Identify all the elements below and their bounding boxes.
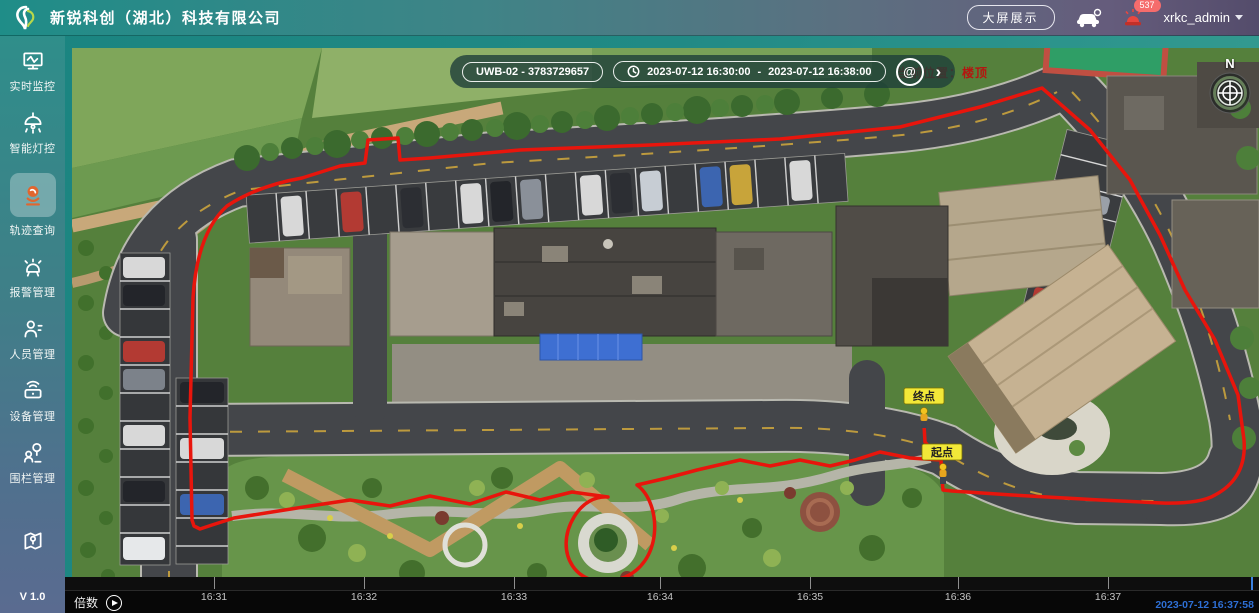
username: xrkc_admin — [1164, 10, 1230, 25]
timeline-tick-label: 16:33 — [494, 591, 534, 603]
device-select-label: UWB-02 - 3783729657 — [476, 66, 589, 78]
big-screen-button[interactable]: 大屏展示 — [967, 5, 1055, 30]
map-icon — [21, 529, 45, 553]
company-name: 新锐科创（湖北）科技有限公司 — [50, 7, 281, 28]
sidebar-item-label: 人员管理 — [10, 346, 56, 362]
timeline-tick-label: 16:35 — [790, 591, 830, 603]
app-root: 终点 起点 UWB-02 - 3783729657 2023-07-12 16:… — [0, 0, 1259, 613]
timeline-tick-label: 16:32 — [344, 591, 384, 603]
lamp-icon — [21, 111, 45, 135]
app-version: V 1.0 — [20, 591, 46, 603]
svg-text:起点: 起点 — [930, 445, 953, 459]
sidebar-item-device-mgmt[interactable]: 设备管理 — [10, 379, 56, 424]
time-range-picker[interactable]: 2023-07-12 16:30:00 - 2023-07-12 16:38:0… — [613, 61, 885, 82]
timeline-track[interactable] — [65, 577, 1259, 591]
time-separator: - — [757, 66, 761, 78]
app-header: 新锐科创（湖北）科技有限公司 大屏展示 — [0, 0, 1259, 36]
timeline-tick-label: 16:36 — [938, 591, 978, 603]
trajectory-query-toolbar: UWB-02 - 3783729657 2023-07-12 16:30:00 … — [450, 55, 955, 88]
alarm-bell-icon — [21, 255, 45, 279]
track-icon — [20, 182, 46, 208]
device-select[interactable]: UWB-02 - 3783729657 — [462, 62, 603, 82]
chevron-right-icon[interactable]: › — [934, 63, 944, 80]
timeline-playhead[interactable] — [1251, 577, 1253, 590]
current-playback-time: 2023-07-12 16:37:58 — [1155, 599, 1254, 611]
sidebar-item-label: 围栏管理 — [10, 470, 56, 486]
main-sidebar: 实时监控 智能灯控 轨迹查询 — [0, 35, 65, 613]
person-icon — [21, 317, 45, 341]
sidebar-item-alarm-mgmt[interactable]: 报警管理 — [10, 255, 56, 300]
user-menu[interactable]: xrkc_admin — [1164, 10, 1243, 25]
sidebar-item-label: 报警管理 — [10, 284, 56, 300]
compass-control[interactable]: N — [1207, 56, 1253, 120]
active-item-highlight — [10, 173, 56, 217]
sidebar-item-label: 轨迹查询 — [10, 222, 56, 238]
alarm-count-badge: 537 — [1134, 0, 1161, 12]
clock-icon — [627, 65, 640, 78]
time-end: 2023-07-12 16:38:00 — [768, 66, 871, 78]
sidebar-item-label: 设备管理 — [10, 408, 56, 424]
sidebar-item-fence-mgmt[interactable]: 围栏管理 — [10, 441, 56, 486]
sidebar-item-label: 实时监控 — [10, 78, 56, 94]
fence-icon — [21, 441, 45, 465]
timeline-tick-label: 16:37 — [1088, 591, 1128, 603]
monitor-icon — [21, 49, 45, 73]
caret-down-icon — [1235, 15, 1243, 20]
svg-text:终点: 终点 — [913, 389, 935, 403]
device-icon — [21, 379, 45, 403]
sidebar-item-label: 智能灯控 — [10, 140, 56, 156]
campus-aerial-map[interactable]: 终点 起点 — [72, 48, 1259, 590]
compass-icon — [1208, 71, 1252, 115]
timeline-tick-label: 16:31 — [194, 591, 234, 603]
play-icon[interactable] — [106, 595, 122, 611]
patrol-car-icon[interactable] — [1075, 8, 1102, 28]
sidebar-item-track-query[interactable]: 轨迹查询 — [10, 173, 56, 238]
company-logo-icon — [14, 5, 38, 31]
speed-label: 倍数 — [74, 594, 98, 611]
sidebar-item-realtime-monitor[interactable]: 实时监控 — [10, 49, 56, 94]
time-start: 2023-07-12 16:30:00 — [647, 66, 750, 78]
siren-icon[interactable]: 537 — [1122, 8, 1144, 28]
timeline-tick-label: 16:34 — [640, 591, 680, 603]
playback-timeline[interactable]: 16:31 16:32 16:33 16:34 16:35 16:36 16:3… — [65, 577, 1259, 613]
at-search-icon[interactable]: @ — [896, 58, 924, 86]
sidebar-item-map[interactable] — [21, 529, 45, 558]
compass-north-label: N — [1207, 56, 1253, 71]
sidebar-item-smart-light[interactable]: 智能灯控 — [10, 111, 56, 156]
sidebar-item-personnel-mgmt[interactable]: 人员管理 — [10, 317, 56, 362]
